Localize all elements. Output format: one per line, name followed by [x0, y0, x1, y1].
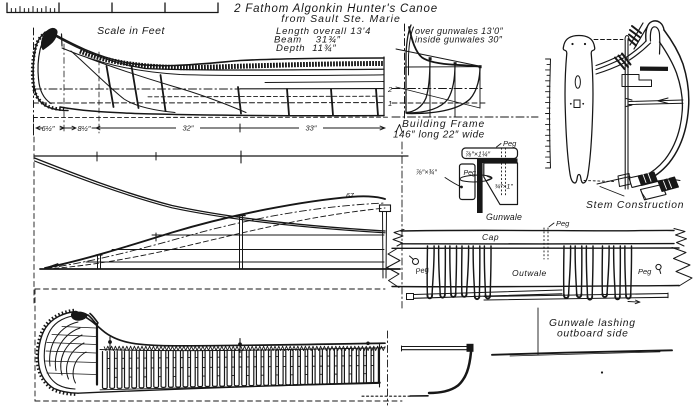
- svg-text:Peg: Peg: [503, 139, 517, 148]
- svg-text:8½″: 8½″: [77, 124, 90, 133]
- svg-text:Building Frame: Building Frame: [402, 119, 485, 130]
- svg-text:⅞″×¾″: ⅞″×¾″: [416, 170, 437, 177]
- svg-text:Gunwale lashing: Gunwale lashing: [549, 318, 636, 329]
- svg-text:Depth 11¾″: Depth 11¾″: [276, 43, 337, 54]
- svg-text:32″: 32″: [183, 124, 194, 133]
- svg-text:33″: 33″: [306, 124, 317, 133]
- svg-text:Cap: Cap: [482, 232, 499, 242]
- svg-text:from Sault Ste. Marie: from Sault Ste. Marie: [281, 13, 401, 25]
- svg-text:outboard side: outboard side: [557, 329, 629, 340]
- svg-text:Scale in Feet: Scale in Feet: [97, 25, 165, 37]
- svg-text:⅞″×1¼″: ⅞″×1¼″: [466, 152, 491, 159]
- svg-text:1: 1: [388, 99, 392, 108]
- svg-text:Outwale: Outwale: [512, 268, 547, 278]
- svg-text:2: 2: [387, 85, 393, 94]
- svg-text:inside gunwales 30″: inside gunwales 30″: [415, 35, 503, 45]
- svg-text:¾″×1″: ¾″×1″: [495, 184, 514, 191]
- svg-text:67: 67: [346, 193, 355, 200]
- svg-text:Peg: Peg: [638, 267, 652, 276]
- svg-text:Stem Construction: Stem Construction: [586, 200, 684, 211]
- svg-text:146″ long 22″ wide: 146″ long 22″ wide: [393, 130, 485, 141]
- svg-text:Gunwale: Gunwale: [486, 212, 522, 222]
- svg-text:Peg: Peg: [556, 219, 570, 228]
- svg-text:6½″: 6½″: [41, 124, 54, 133]
